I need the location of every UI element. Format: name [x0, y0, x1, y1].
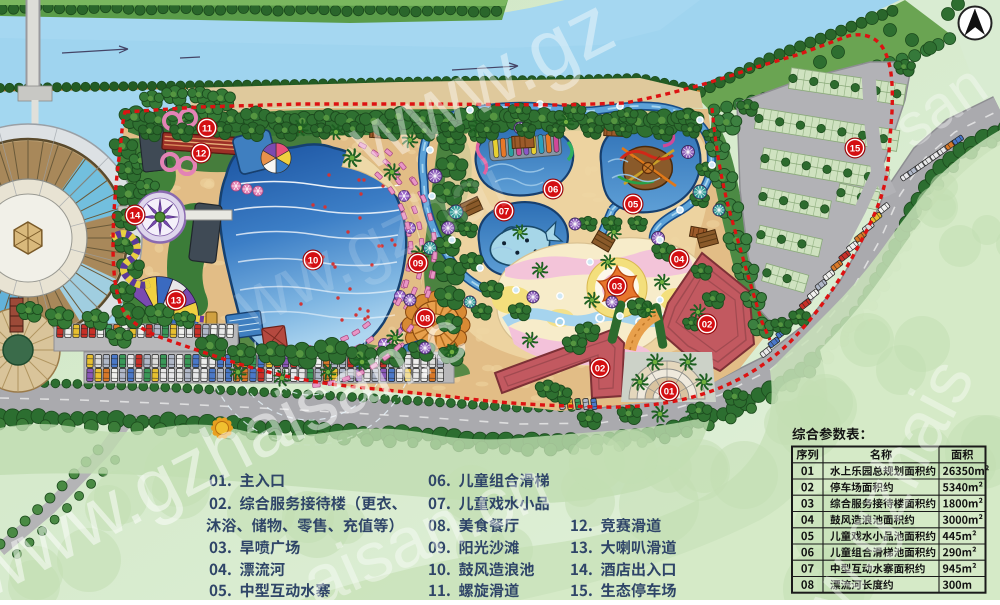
svg-text:13: 13 — [171, 295, 182, 306]
svg-text:02: 02 — [595, 363, 606, 374]
svg-text:03: 03 — [612, 281, 623, 292]
svg-text:15: 15 — [850, 143, 861, 154]
svg-text:14: 14 — [130, 210, 141, 221]
svg-text:05: 05 — [628, 199, 639, 210]
svg-text:01: 01 — [664, 386, 675, 397]
svg-text:06: 06 — [548, 184, 559, 195]
svg-text:11: 11 — [202, 123, 213, 134]
svg-text:12: 12 — [196, 148, 207, 159]
svg-text:04: 04 — [674, 254, 685, 265]
svg-text:02: 02 — [702, 319, 713, 330]
